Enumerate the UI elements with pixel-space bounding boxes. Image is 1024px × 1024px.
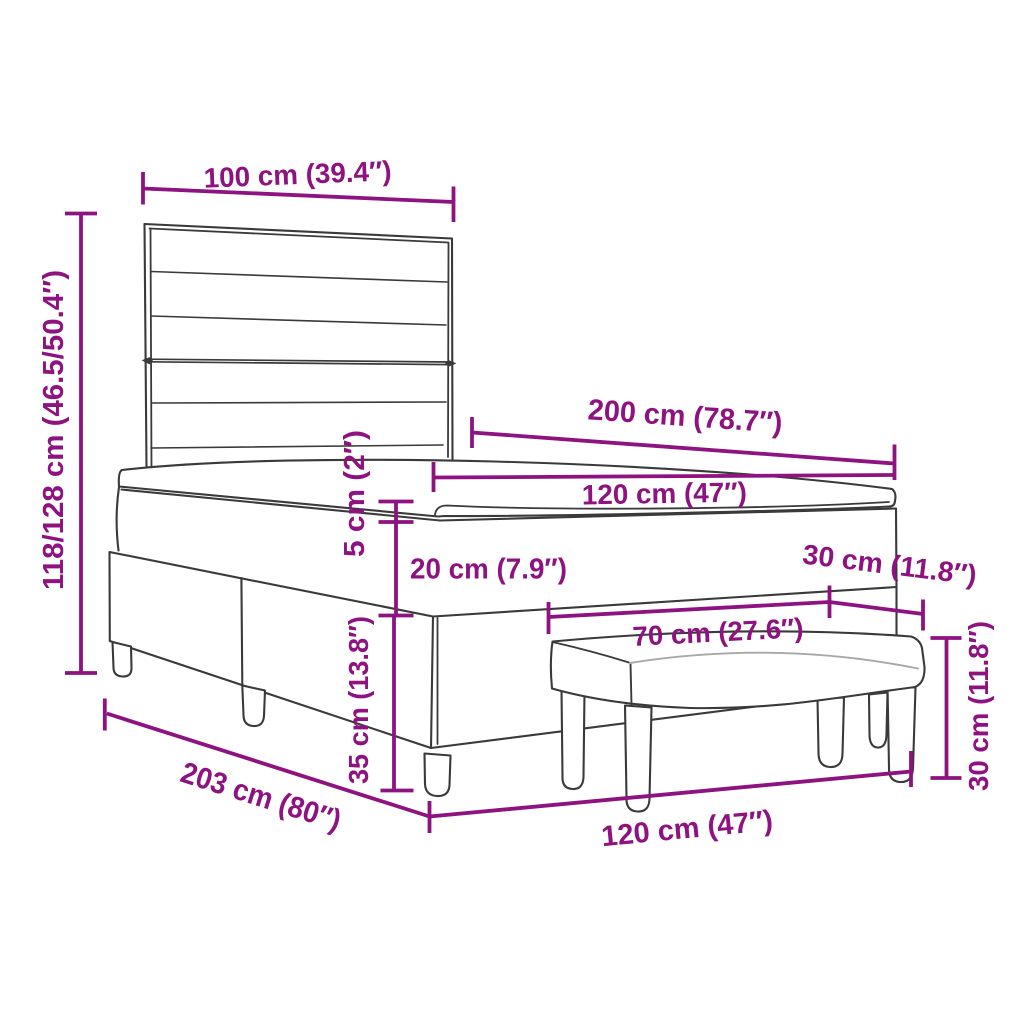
svg-text:20 cm (7.9″): 20 cm (7.9″) xyxy=(410,554,567,586)
svg-text:5 cm (2″): 5 cm (2″) xyxy=(339,430,371,557)
svg-text:120 cm (47″): 120 cm (47″) xyxy=(582,477,748,511)
svg-text:118/128 cm (46.5/50.4″): 118/128 cm (46.5/50.4″) xyxy=(38,270,70,590)
svg-text:35 cm (13.8″): 35 cm (13.8″) xyxy=(343,616,374,784)
svg-text:30 cm (11.8″): 30 cm (11.8″) xyxy=(963,621,994,791)
